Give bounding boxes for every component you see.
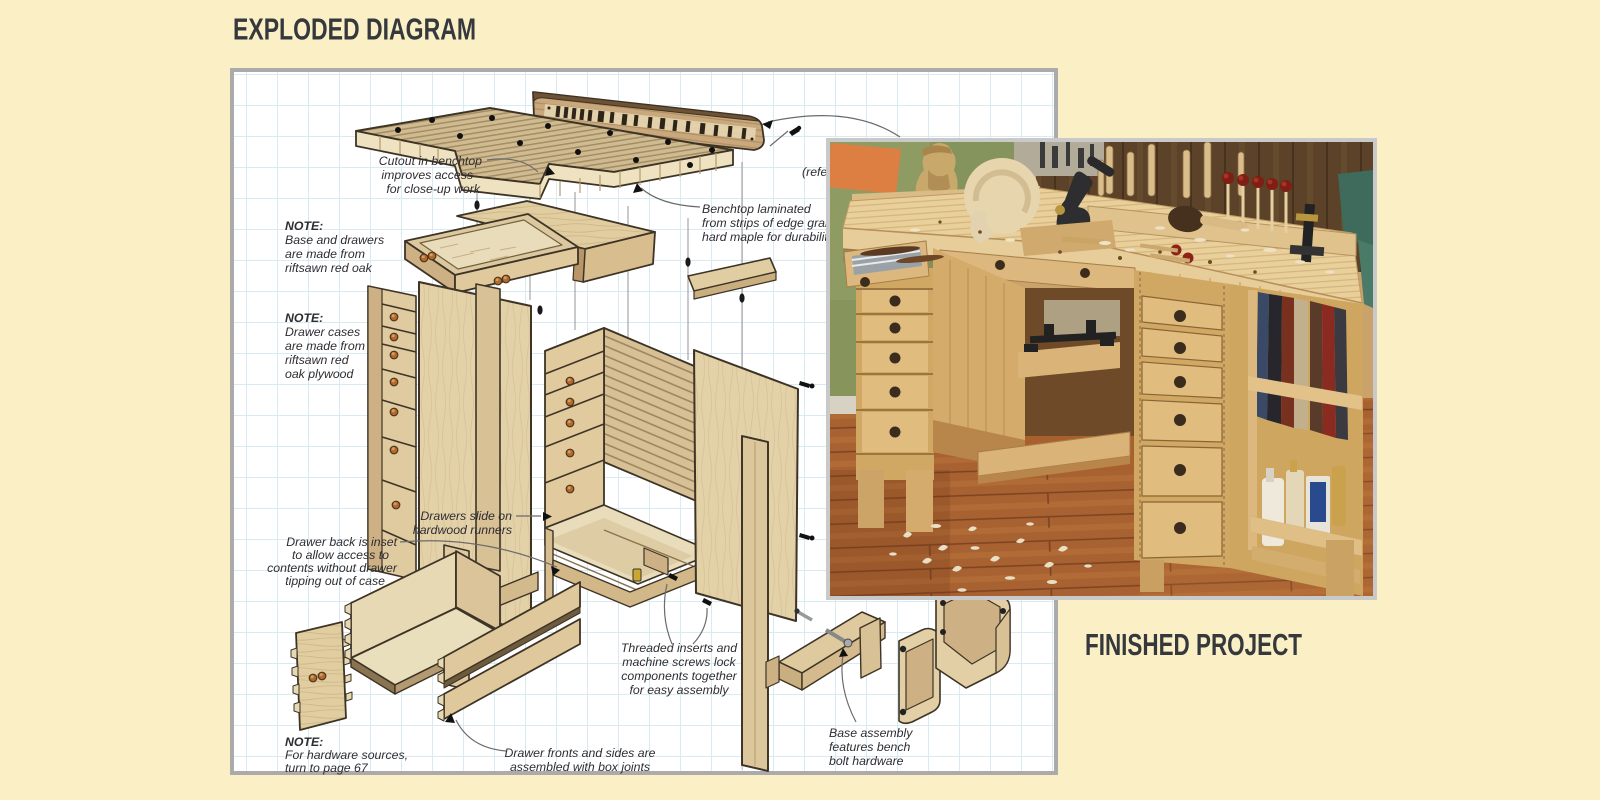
svg-text:NOTE:: NOTE: <box>285 219 323 233</box>
svg-text:Drawers slide onhardwood runne: Drawers slide onhardwood runners <box>413 509 512 537</box>
svg-text:EXPLODED DIAGRAM: EXPLODED DIAGRAM <box>233 12 476 47</box>
svg-text:Base assemblyfeatures benchbol: Base assemblyfeatures benchbolt hardware <box>829 726 913 768</box>
svg-text:Drawer fronts and sides areass: Drawer fronts and sides areassembled wit… <box>504 746 655 774</box>
svg-text:NOTE:: NOTE: <box>285 311 323 325</box>
svg-text:FINISHED PROJECT: FINISHED PROJECT <box>1085 627 1302 662</box>
svg-text:Drawer back is insetto allow a: Drawer back is insetto allow access toco… <box>267 535 398 588</box>
svg-text:NOTE:: NOTE: <box>285 735 323 749</box>
svg-text:Cutout in benchtopimproves acc: Cutout in benchtopimproves accessfor clo… <box>379 154 482 196</box>
svg-text:Threaded inserts andmachine sc: Threaded inserts andmachine screws lockc… <box>621 641 738 697</box>
